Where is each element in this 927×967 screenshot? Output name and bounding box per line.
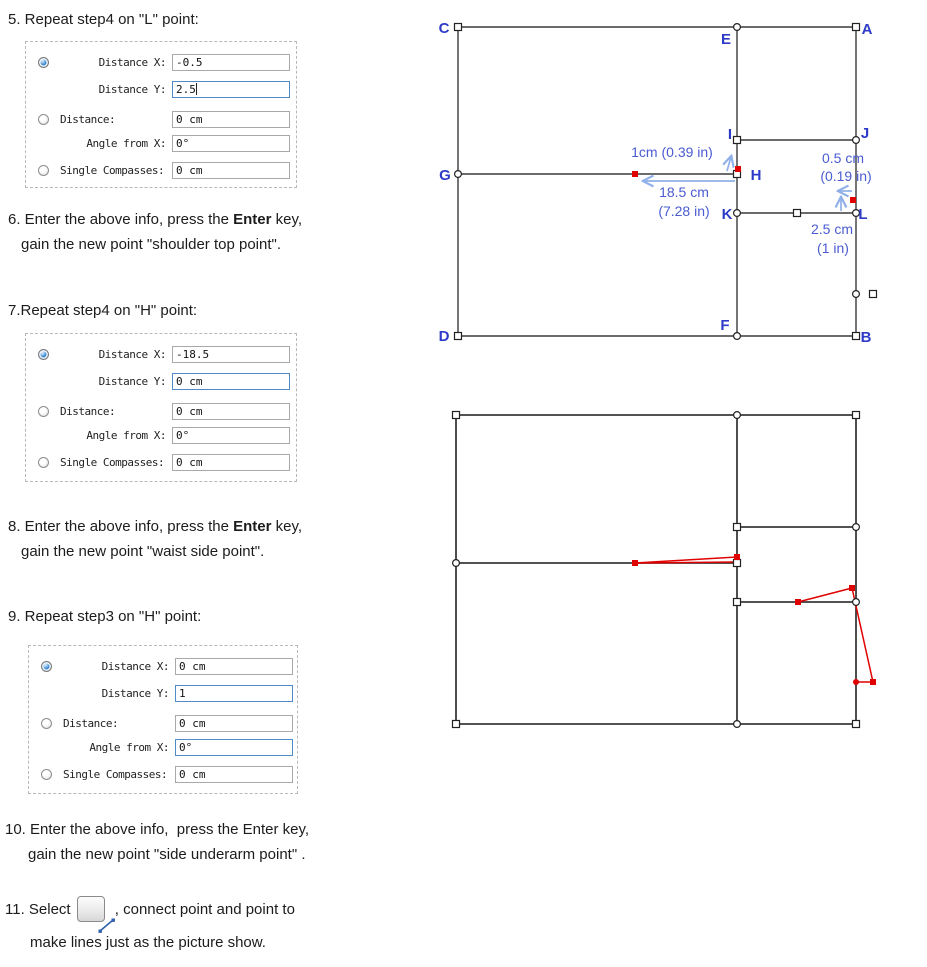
diagram-connected-pattern — [453, 412, 877, 728]
red-construction-line — [635, 562, 737, 563]
point-label: C — [439, 20, 450, 37]
point-marker — [455, 171, 462, 178]
point-marker — [734, 524, 741, 531]
point-marker — [734, 24, 741, 31]
new-point-marker — [853, 679, 859, 685]
point-label: G — [439, 167, 451, 184]
point-marker — [455, 24, 462, 31]
point-marker — [734, 210, 741, 217]
point-label: E — [721, 31, 731, 48]
point-marker — [853, 412, 860, 419]
measurement-label: (7.28 in) — [658, 203, 709, 219]
point-marker — [734, 721, 741, 728]
red-construction-line — [798, 588, 852, 602]
new-point-marker — [850, 197, 856, 203]
point-label: F — [720, 317, 729, 334]
point-marker — [734, 333, 741, 340]
point-marker — [794, 210, 801, 217]
new-point-marker — [734, 554, 740, 560]
point-marker — [853, 333, 860, 340]
point-marker — [734, 560, 741, 567]
measurement-label: 0.5 cm — [822, 150, 864, 166]
point-marker — [455, 333, 462, 340]
point-marker — [853, 291, 860, 298]
new-point-marker — [849, 585, 855, 591]
point-marker — [853, 524, 860, 531]
measurement-label: 1cm (0.39 in) — [631, 144, 713, 160]
point-marker — [453, 412, 460, 419]
new-point-marker — [870, 679, 876, 685]
point-label: K — [722, 206, 733, 223]
point-marker — [853, 599, 860, 606]
new-point-marker — [632, 171, 638, 177]
new-point-marker — [735, 166, 741, 172]
point-label: A — [862, 21, 873, 38]
point-marker — [453, 721, 460, 728]
measurement-label: 18.5 cm — [659, 184, 709, 200]
point-marker — [734, 599, 741, 606]
pattern-diagrams: 1cm (0.39 in)18.5 cm(7.28 in)0.5 cm(0.19… — [0, 0, 927, 967]
point-marker — [853, 137, 860, 144]
point-label: H — [751, 167, 762, 184]
point-label: D — [439, 328, 450, 345]
point-marker — [453, 560, 460, 567]
point-marker — [734, 412, 741, 419]
measurement-label: 2.5 cm — [811, 221, 853, 237]
new-point-marker — [632, 560, 638, 566]
diagram-annotated-pattern: 1cm (0.39 in)18.5 cm(7.28 in)0.5 cm(0.19… — [439, 20, 877, 346]
point-label: L — [858, 206, 867, 223]
point-marker — [734, 137, 741, 144]
point-marker — [853, 24, 860, 31]
measurement-arrow — [727, 157, 731, 171]
point-label: I — [728, 126, 732, 143]
point-label: B — [861, 329, 872, 346]
measurement-label: (0.19 in) — [820, 168, 871, 184]
new-point-marker — [795, 599, 801, 605]
point-marker — [870, 291, 877, 298]
point-marker — [853, 721, 860, 728]
measurement-label: (1 in) — [817, 240, 849, 256]
point-label: J — [861, 125, 869, 142]
